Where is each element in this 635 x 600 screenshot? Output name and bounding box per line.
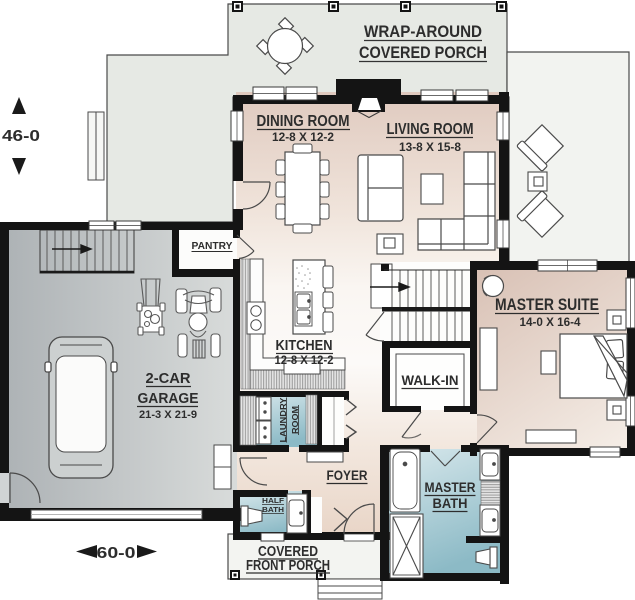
- svg-text:MASTER SUITE: MASTER SUITE: [495, 296, 599, 314]
- svg-text:2-CAR: 2-CAR: [146, 371, 192, 387]
- svg-text:BATH: BATH: [433, 496, 468, 511]
- svg-text:14-0 X 16-4: 14-0 X 16-4: [520, 315, 581, 329]
- svg-text:WRAP-AROUND: WRAP-AROUND: [364, 22, 482, 41]
- svg-text:FRONT PORCH: FRONT PORCH: [246, 558, 330, 574]
- svg-text:BATH: BATH: [262, 505, 284, 514]
- svg-text:12-8 X 12-2: 12-8 X 12-2: [275, 355, 334, 367]
- svg-text:13-8 X 15-8: 13-8 X 15-8: [399, 142, 462, 154]
- svg-text:HALF: HALF: [262, 496, 284, 505]
- svg-text:12-8 X 12-2: 12-8 X 12-2: [272, 132, 334, 144]
- svg-text:COVERED PORCH: COVERED PORCH: [359, 43, 487, 62]
- svg-text:60-0: 60-0: [97, 545, 136, 562]
- svg-text:MASTER: MASTER: [425, 480, 476, 495]
- svg-text:GARAGE: GARAGE: [138, 391, 199, 407]
- svg-text:FOYER: FOYER: [327, 468, 368, 483]
- svg-text:46-0: 46-0: [2, 128, 40, 145]
- svg-text:KITCHEN: KITCHEN: [276, 338, 333, 354]
- svg-text:21-3 X 21-9: 21-3 X 21-9: [139, 409, 197, 421]
- svg-text:DINING ROOM: DINING ROOM: [257, 113, 350, 130]
- svg-text:LIVING ROOM: LIVING ROOM: [387, 121, 474, 138]
- svg-text:PANTRY: PANTRY: [192, 240, 233, 252]
- svg-text:WALK-IN: WALK-IN: [402, 373, 459, 388]
